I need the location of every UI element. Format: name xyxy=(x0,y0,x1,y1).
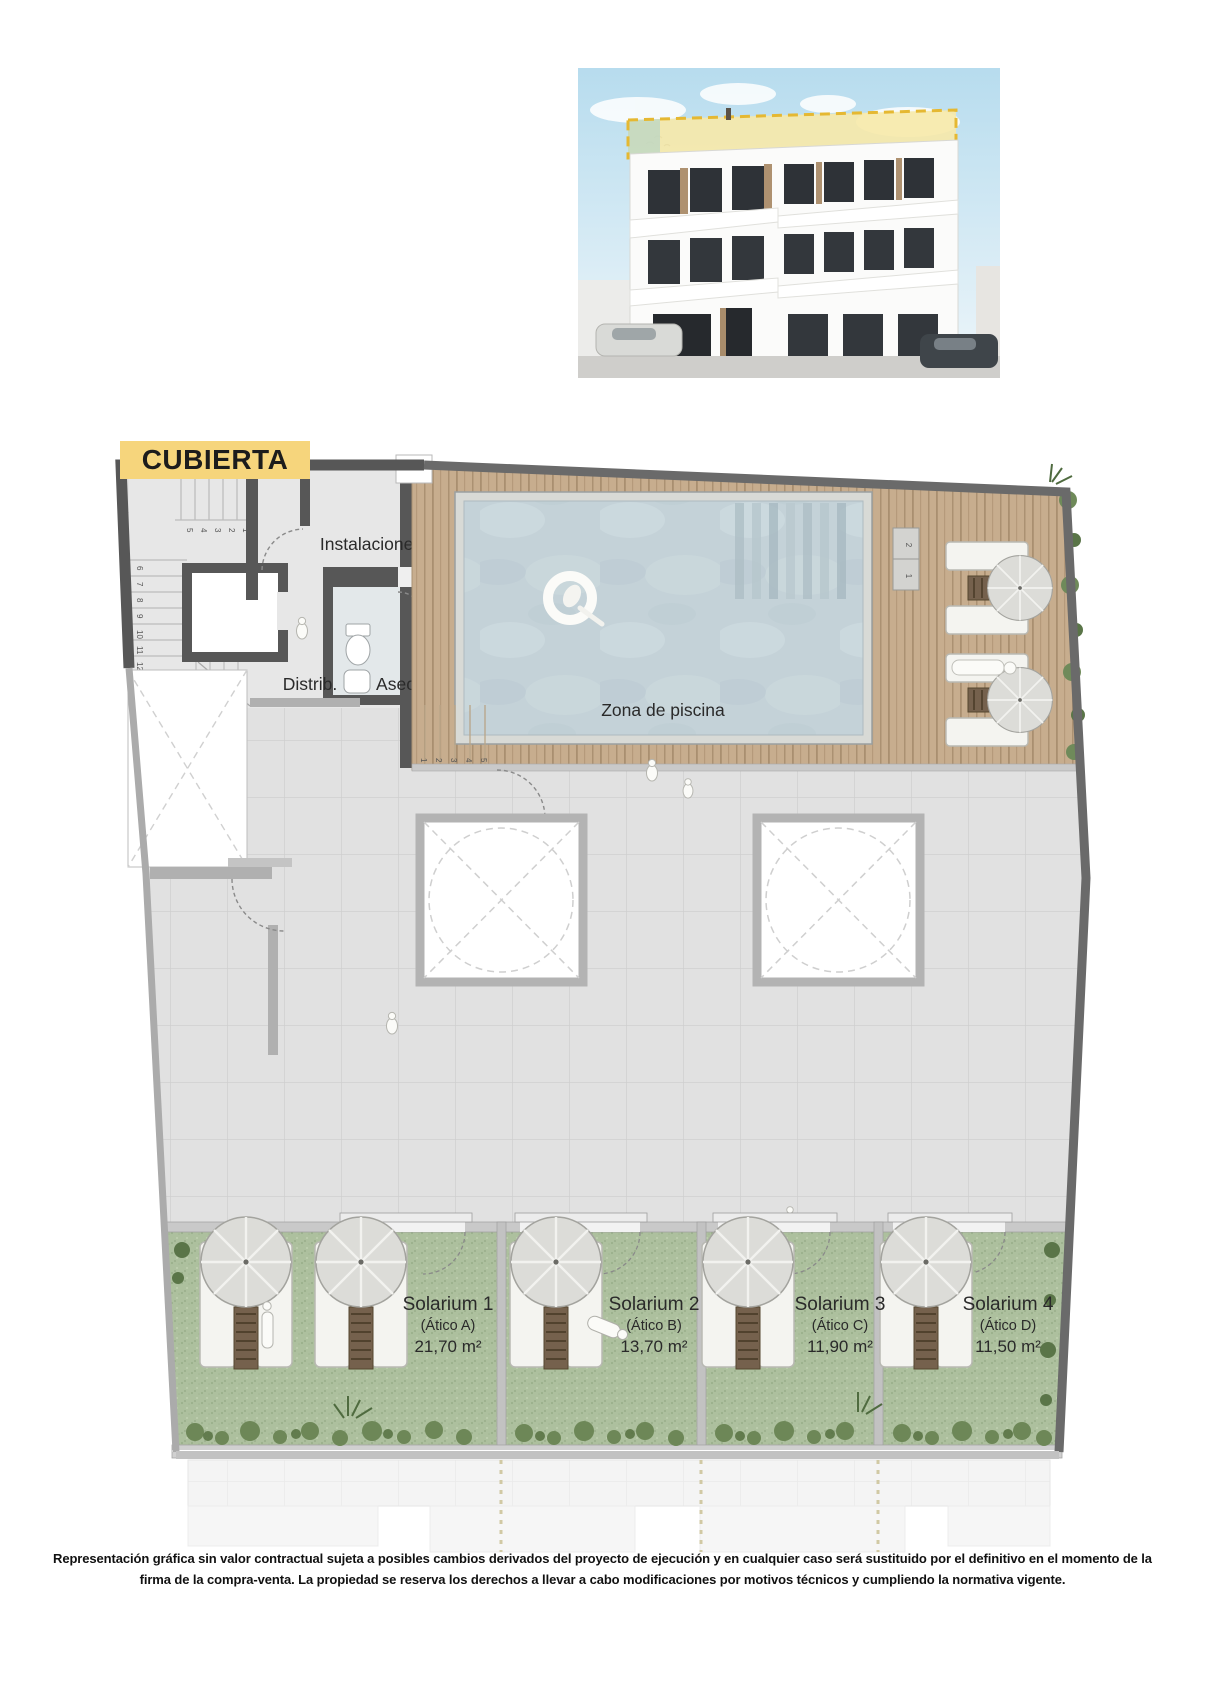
solarium4-unit: (Ático D) xyxy=(980,1317,1036,1334)
stair-number: 2 xyxy=(227,528,236,533)
room-label-instalaciones: Instalaciones xyxy=(320,534,422,554)
solarium2-name: Solarium 2 xyxy=(609,1294,700,1315)
solarium1-name: Solarium 1 xyxy=(403,1294,494,1315)
floor-plan: 1 2 3 4 5 6 7 8 9 10 11 12 xyxy=(121,455,1086,1552)
room-label-distrib: Distrib. xyxy=(283,674,337,694)
pool-steps: 2 1 xyxy=(893,528,919,590)
solarium1-area: 21,70 m² xyxy=(414,1337,481,1356)
person-terrace-1 xyxy=(647,759,658,781)
roof-person xyxy=(726,108,731,120)
stair-number: 8 xyxy=(135,598,144,603)
solarium2-unit: (Ático B) xyxy=(626,1317,682,1334)
page: CUBIERTA xyxy=(0,0,1205,1704)
pool-deck: Zona de piscina 2 1 xyxy=(396,455,1085,818)
solarium3-beds xyxy=(702,1217,794,1369)
skylight-1 xyxy=(420,818,583,982)
person-terrace-2 xyxy=(683,779,693,798)
solarium3-unit: (Ático C) xyxy=(812,1317,868,1334)
building-render xyxy=(578,68,1000,378)
pool-step-number: 2 xyxy=(904,543,913,548)
solarium4-area: 11,50 m² xyxy=(975,1337,1041,1356)
solarium1-unit: (Ático A) xyxy=(421,1317,476,1334)
disclaimer-line-2: firma de la compra-venta. La propiedad s… xyxy=(42,1569,1163,1590)
lower-floor-ghost xyxy=(188,1460,1050,1552)
floor-title-badge: CUBIERTA xyxy=(120,441,310,479)
deck-edge-wall xyxy=(412,764,1083,771)
solarium4-name: Solarium 4 xyxy=(963,1294,1054,1315)
disclaimer-line-1: Representación gráfica sin valor contrac… xyxy=(42,1548,1163,1569)
stair-number: 10 xyxy=(135,630,144,639)
solarium-strip: Solarium 1 (Ático A) 21,70 m² Solarium 2… xyxy=(163,1213,1072,1458)
solarium4-beds xyxy=(880,1217,972,1369)
plan-canvas: 1 2 3 4 5 6 7 8 9 10 11 12 xyxy=(0,0,1205,1704)
stair-number: 11 xyxy=(135,646,144,655)
floor-title: CUBIERTA xyxy=(142,444,289,476)
person-terrace-3 xyxy=(387,1012,398,1034)
deck-step-number: 4 xyxy=(464,758,473,763)
elevator xyxy=(187,568,289,657)
stair-number: 5 xyxy=(185,528,194,533)
room-label-aseo: Aseo xyxy=(376,674,416,694)
stair-number: 6 xyxy=(135,566,144,571)
stair-number: 7 xyxy=(135,582,144,587)
deck-step-number: 3 xyxy=(449,758,458,763)
solarium3-name: Solarium 3 xyxy=(795,1294,886,1315)
solarium1-beds-b xyxy=(315,1217,407,1369)
stair-number: 4 xyxy=(199,528,208,533)
toilet xyxy=(346,624,370,665)
skylight-2 xyxy=(757,818,920,982)
deck-step-number: 5 xyxy=(479,758,488,763)
car-right xyxy=(920,334,998,368)
pool: Zona de piscina xyxy=(455,492,872,744)
deck-step-number: 1 xyxy=(419,758,428,763)
disclaimer: Representación gráfica sin valor contrac… xyxy=(42,1548,1163,1590)
solarium1-beds-a xyxy=(200,1217,292,1369)
solarium2-beds xyxy=(510,1217,602,1369)
stair-number: 3 xyxy=(213,528,222,533)
person-distrib xyxy=(297,617,308,639)
stair-number: 9 xyxy=(135,614,144,619)
deck-step-number: 2 xyxy=(434,758,443,763)
sink xyxy=(344,670,370,693)
pool-step-number: 1 xyxy=(904,574,913,579)
room-label-pool: Zona de piscina xyxy=(601,700,725,720)
car-left xyxy=(596,324,682,356)
solarium2-area: 13,70 m² xyxy=(620,1337,687,1356)
solarium3-area: 11,90 m² xyxy=(807,1337,873,1356)
